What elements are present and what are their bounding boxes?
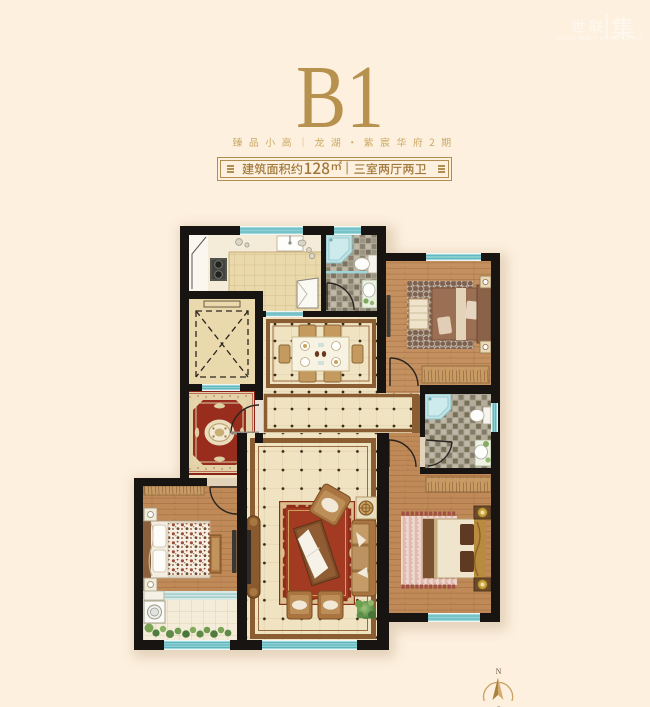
svg-text:B1: B1 bbox=[296, 48, 384, 147]
svg-text:MERGE REALTY GROUP CO LTD: MERGE REALTY GROUP CO LTD bbox=[556, 36, 641, 42]
svg-text:N: N bbox=[496, 667, 502, 676]
